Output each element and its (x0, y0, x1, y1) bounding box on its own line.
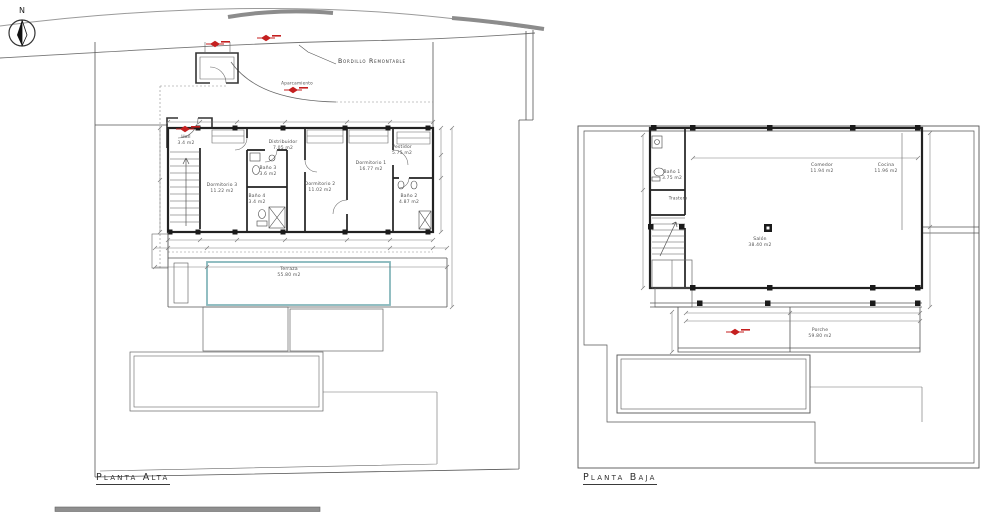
level-markers (176, 35, 750, 335)
north-compass: N (9, 6, 35, 46)
planta-baja-building (648, 125, 922, 352)
room-label-comedor: Comedor11.94 m2 (810, 163, 833, 175)
plan-linework: N (0, 0, 1000, 516)
room-label-porche: Porche59.80 m2 (808, 328, 831, 340)
room-label-dormitorio-2: Dormitorio 211.02 m2 (305, 182, 336, 194)
north-label: N (19, 6, 25, 15)
planta-alta-title: Planta Alta (96, 472, 170, 485)
planta-alta-terrace (130, 232, 447, 411)
planta-alta-plot (95, 30, 533, 477)
room-label-vestidor: Vestidor5.75 m2 (392, 145, 412, 157)
room-label-hall: Hall3.4 m2 (177, 135, 194, 147)
room-label-bano-2: Baño 24.87 m2 (399, 194, 419, 206)
room-label-bano-3: Baño 33.6 m2 (259, 166, 276, 178)
room-label-dormitorio-1: Dormitorio 116.77 m2 (356, 161, 387, 173)
room-label-cocina: Cocina11.96 m2 (874, 163, 897, 175)
planta-baja-title: Planta Baja (583, 472, 657, 485)
room-label-bano-4: Baño 43.4 m2 (248, 194, 265, 206)
room-label-terraza: Terraza55.80 m2 (277, 267, 300, 279)
room-label-trastero: Trastero (669, 195, 687, 200)
floor-plan-sheet: N (0, 0, 1000, 516)
room-label-bano-1: Baño 13.75 m2 (662, 170, 682, 182)
planta-baja-pool (617, 355, 810, 413)
planta-baja-plot (578, 126, 979, 468)
aparcamiento-label: Aparcamiento (281, 80, 313, 85)
room-label-dormitorio-3: Dormitorio 311.22 m2 (207, 183, 238, 195)
scale-bar (55, 507, 320, 512)
room-label-salon: Salón38.40 m2 (748, 237, 771, 249)
room-label-distribuidor: Distribuidor7.05 m2 (269, 140, 298, 152)
bordillo-remontable-label: Bordillo Remontable (338, 58, 406, 65)
